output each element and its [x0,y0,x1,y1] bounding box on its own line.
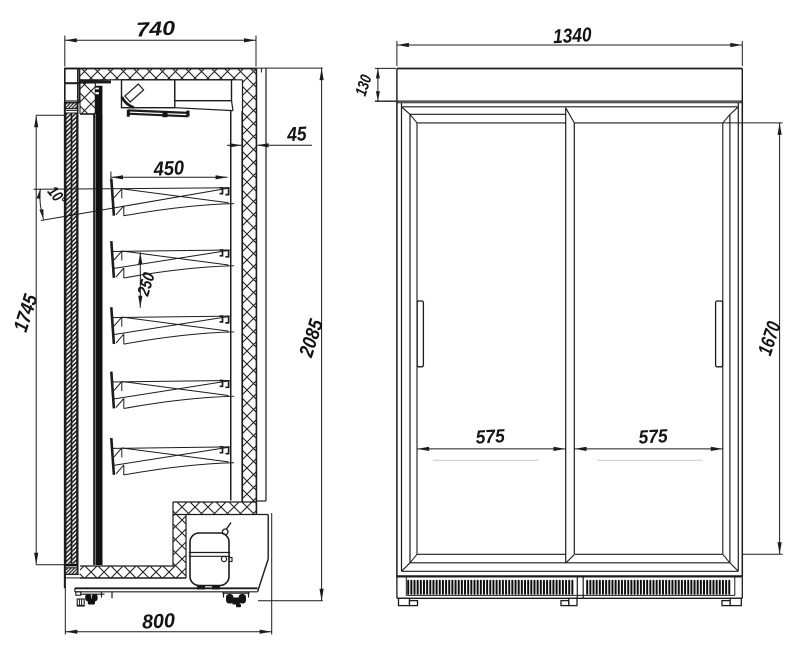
svg-text:575: 575 [638,426,668,449]
svg-text:450: 450 [152,157,185,181]
svg-text:1340: 1340 [552,24,592,48]
svg-text:575: 575 [475,426,505,449]
svg-text:800: 800 [141,610,175,634]
svg-text:740: 740 [136,18,176,42]
svg-text:45: 45 [286,123,308,146]
